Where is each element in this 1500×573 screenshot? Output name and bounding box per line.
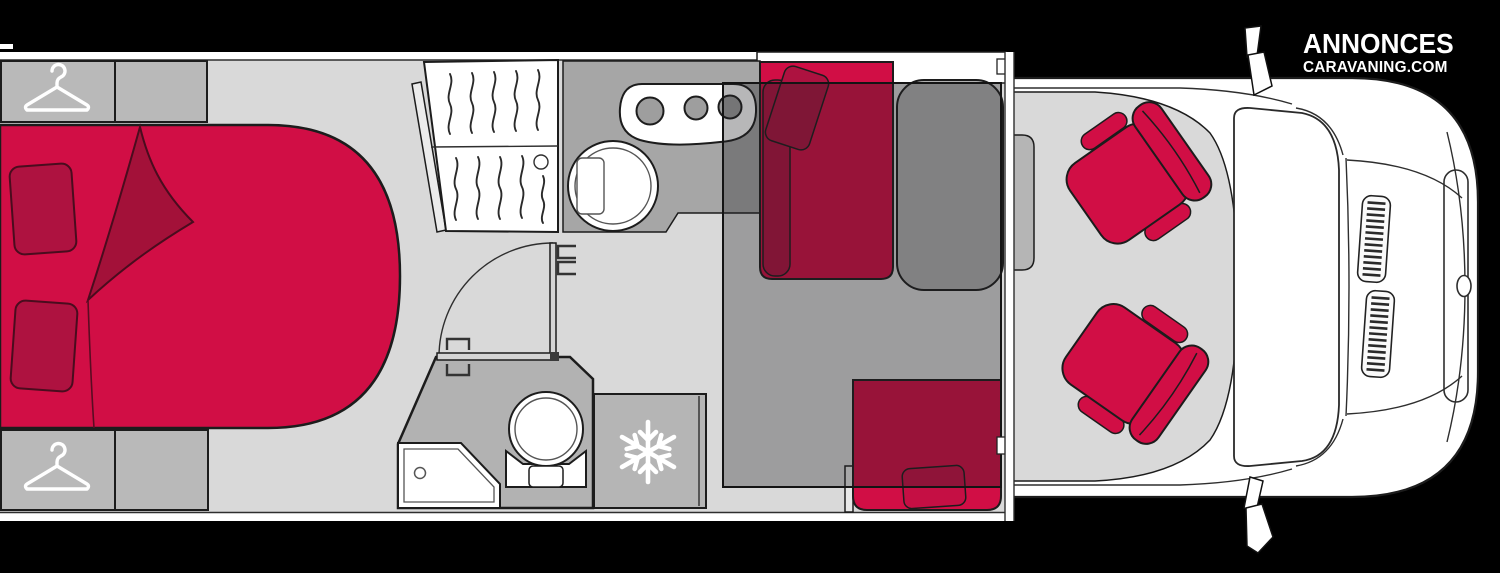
bathroom-partition-door [437, 353, 557, 360]
kitchen-sink [568, 141, 658, 231]
front-badge [1457, 276, 1471, 297]
door-hinge [550, 352, 559, 361]
hood-vent [1357, 195, 1391, 283]
floorplan-screenshot-root: ANNONCES CARAVANING.COM [0, 0, 1500, 573]
shower-drain [415, 468, 426, 479]
rear-bed [0, 125, 400, 428]
brand-logo-line1: ANNONCES [1303, 30, 1454, 58]
vehicle-front [1013, 78, 1478, 497]
bed-pillow [10, 300, 78, 392]
drop-down-bed-overlay [723, 83, 1001, 487]
bed-pillow [9, 163, 77, 255]
refrigerator [594, 394, 706, 508]
toilet [506, 392, 586, 487]
brand-logo-line2: CARAVANING.COM [1303, 60, 1462, 76]
floorplan-canvas [0, 0, 1500, 573]
rear-top-wardrobe [1, 61, 207, 122]
bathroom-door [550, 243, 556, 357]
windshield [1234, 108, 1339, 466]
hood-vent [1361, 290, 1395, 378]
rear-bottom-wardrobe [1, 430, 208, 510]
cab-console [1013, 135, 1034, 270]
brand-logo: ANNONCES CARAVANING.COM [1303, 30, 1463, 76]
